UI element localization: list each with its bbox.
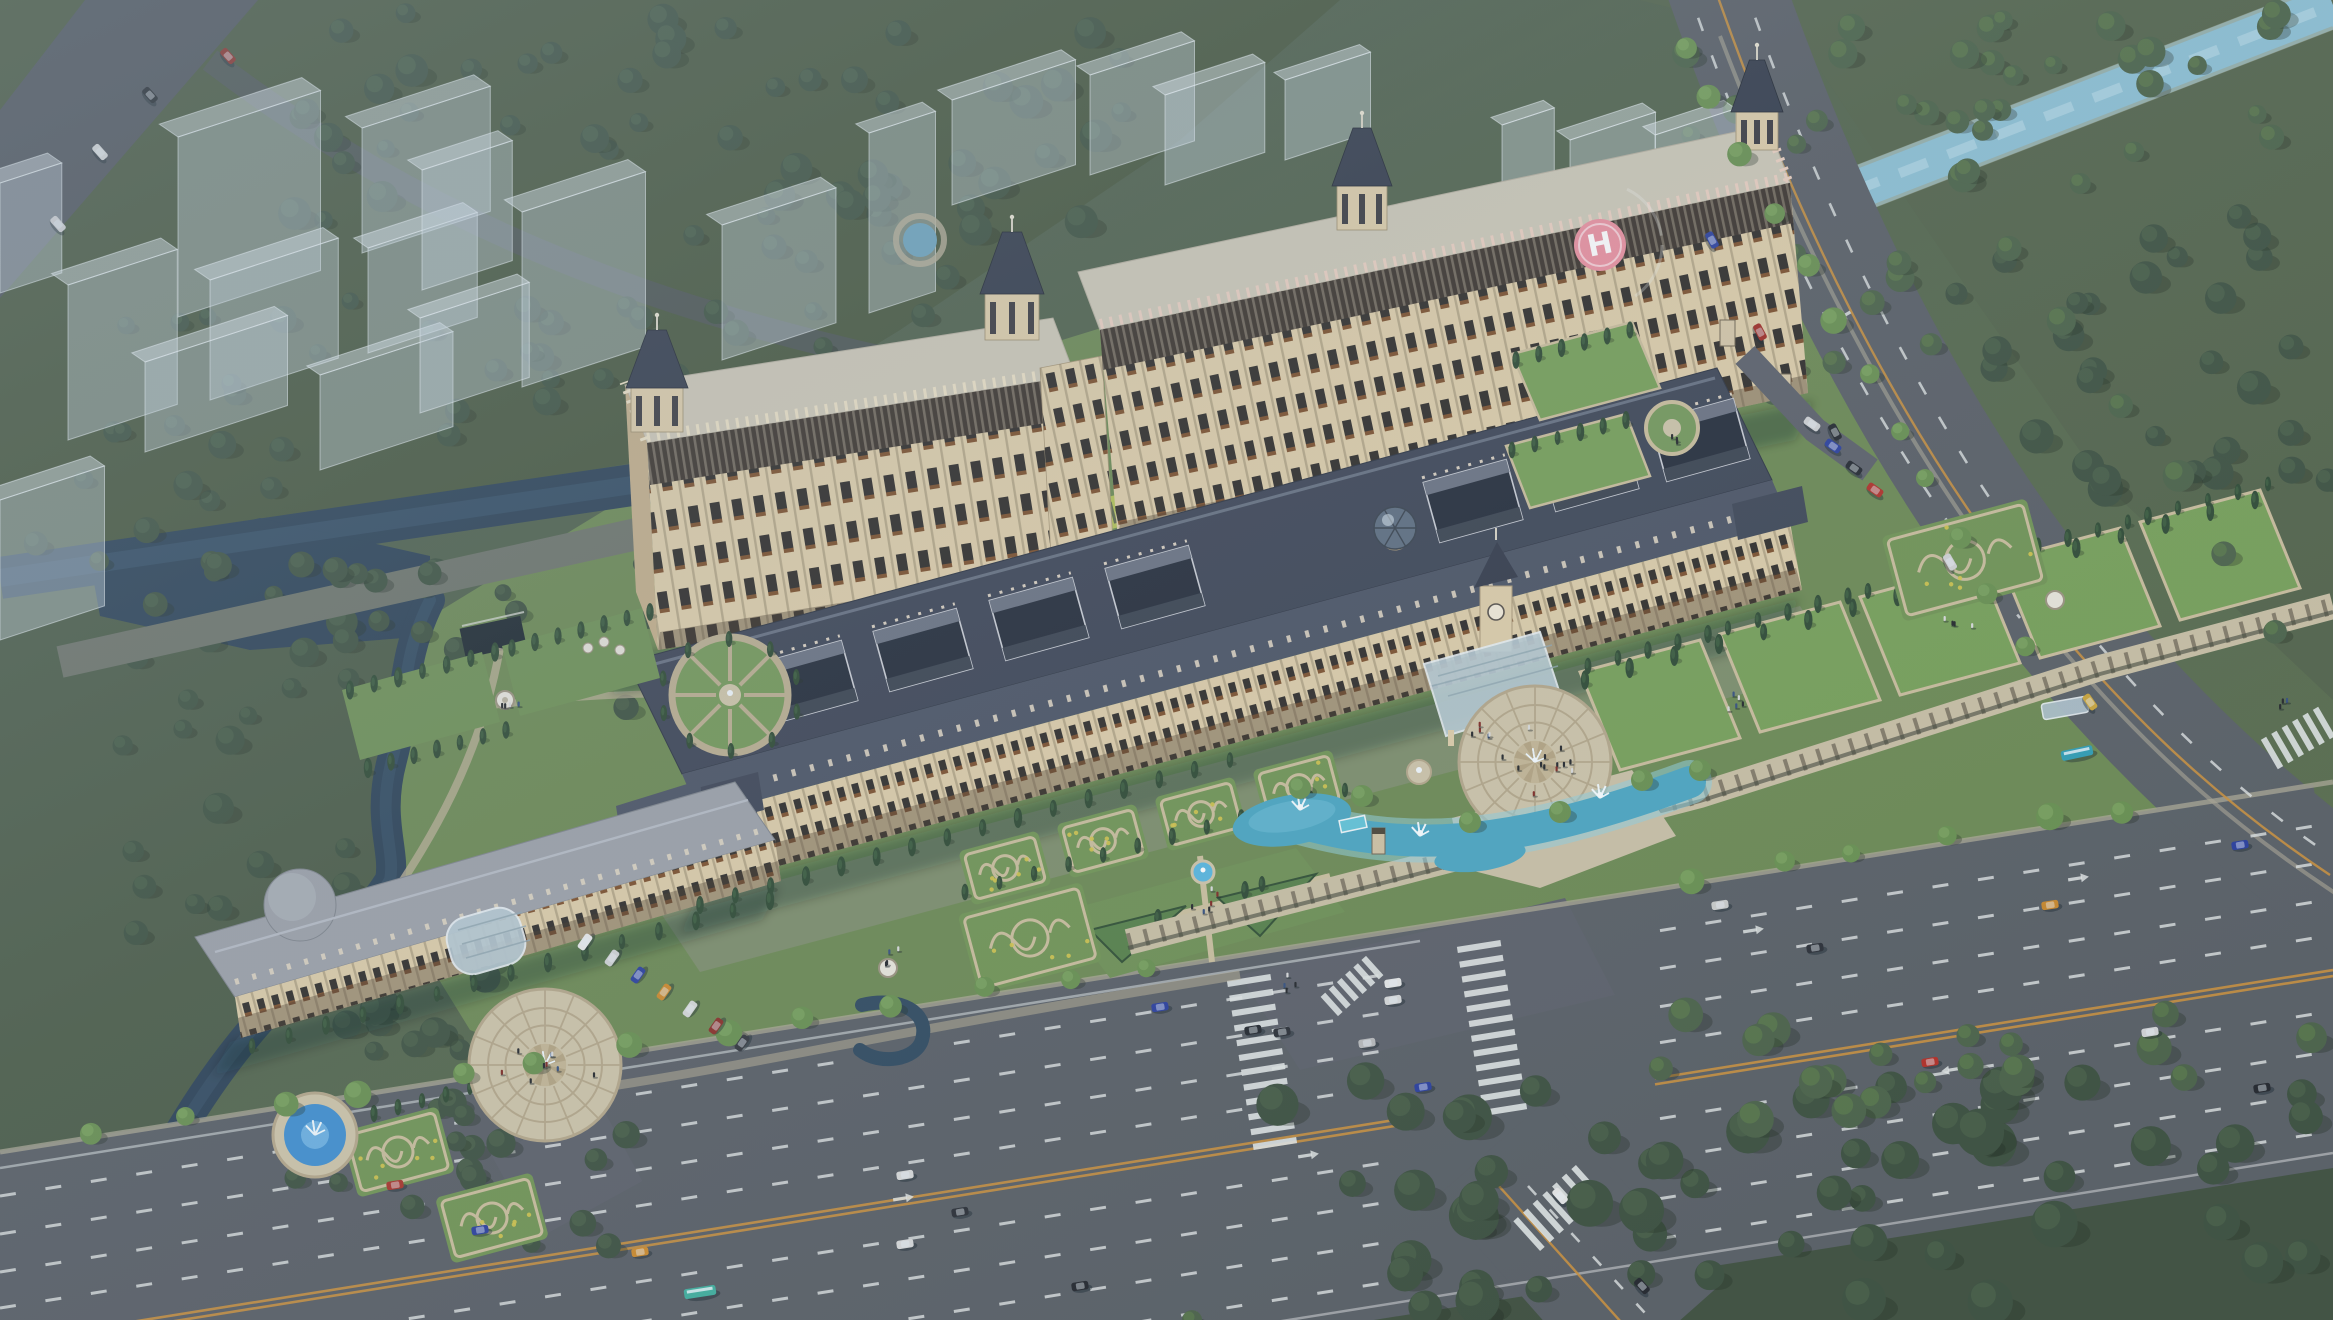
aerial-rendering: H <box>0 0 2333 1320</box>
campus-aerial-scene: H <box>0 0 2333 1320</box>
atmosphere-overlay <box>0 0 2333 1320</box>
